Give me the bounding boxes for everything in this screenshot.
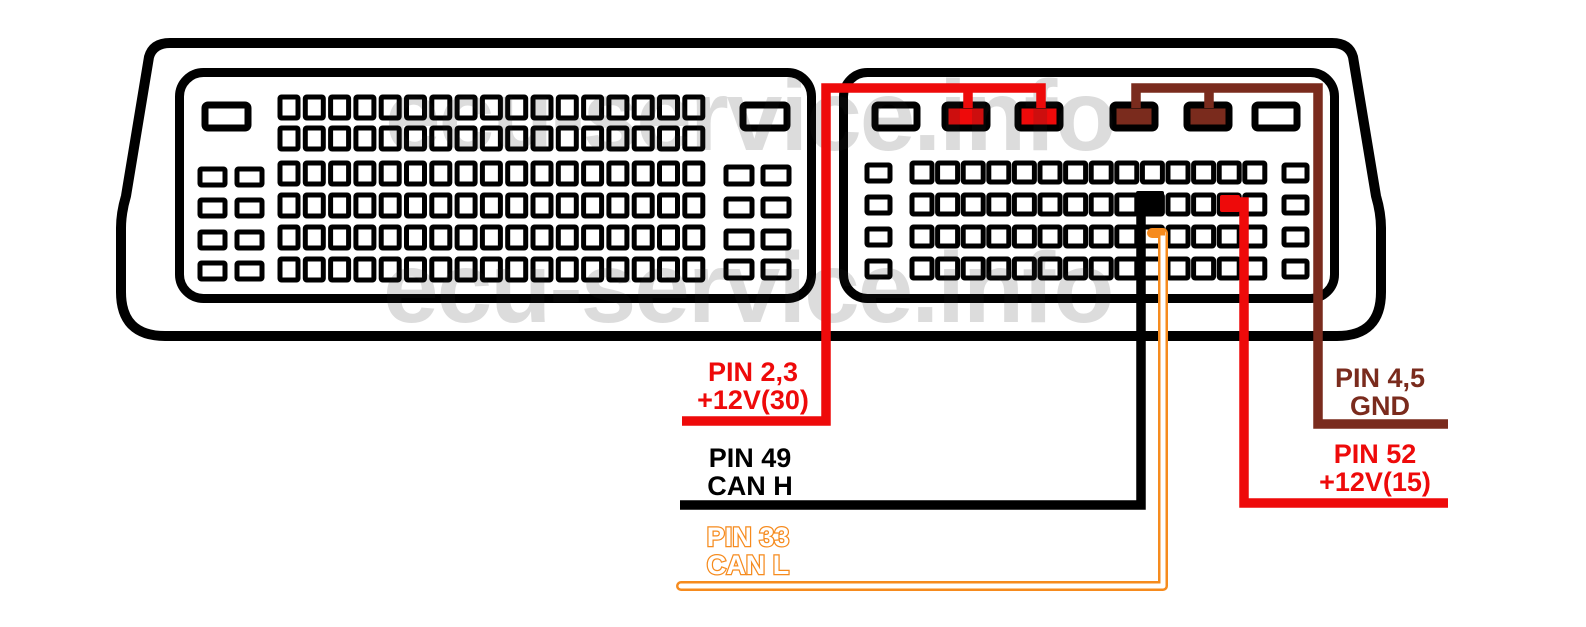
pin	[305, 227, 323, 248]
pin	[280, 97, 298, 118]
pin	[634, 195, 652, 216]
pin	[533, 195, 551, 216]
label-pin-4-5-gnd: PIN 4,5 GND	[1270, 364, 1490, 420]
pin	[609, 195, 627, 216]
pin	[200, 263, 225, 279]
pin	[1117, 163, 1137, 182]
pin	[356, 97, 374, 118]
pin	[356, 163, 374, 184]
pin	[508, 195, 526, 216]
pin	[356, 259, 374, 280]
pin	[200, 169, 225, 185]
pin	[305, 163, 323, 184]
pin	[331, 259, 349, 280]
pin	[331, 97, 349, 118]
label-pin-49-can-h: PIN 49 CAN H	[640, 444, 860, 500]
pin	[558, 195, 576, 216]
pin	[963, 195, 983, 214]
label-line: PIN 49	[640, 444, 860, 472]
pin	[200, 200, 225, 216]
pin	[1168, 259, 1188, 278]
label-line: +12V(30)	[643, 386, 863, 414]
pin	[1284, 229, 1307, 245]
label-line: +12V(15)	[1265, 468, 1485, 496]
label-pin-33-can-l: PIN 33 CAN L	[638, 523, 858, 579]
pin	[237, 263, 262, 279]
pin	[457, 195, 475, 216]
pin	[1194, 163, 1214, 182]
big-pin-brown	[1187, 105, 1229, 128]
pin	[1168, 195, 1188, 214]
pin	[912, 195, 932, 214]
pin	[1284, 197, 1307, 213]
pin	[1091, 195, 1111, 214]
pin	[1219, 163, 1239, 182]
pin	[1245, 163, 1265, 182]
pin	[305, 97, 323, 118]
label-line: PIN 4,5	[1270, 364, 1490, 392]
pin	[356, 128, 374, 149]
pin	[1117, 259, 1137, 278]
pin	[280, 259, 298, 280]
pin	[726, 199, 752, 216]
label-line: PIN 33	[638, 523, 858, 551]
pin	[1284, 165, 1307, 181]
label-line: PIN 2,3	[643, 358, 863, 386]
pin	[1194, 195, 1214, 214]
pin	[1014, 195, 1034, 214]
pin	[305, 128, 323, 149]
pin	[331, 195, 349, 216]
pin	[237, 200, 262, 216]
pin	[280, 195, 298, 216]
pin	[432, 195, 450, 216]
pin	[407, 195, 425, 216]
big-pin-brown	[1113, 105, 1155, 128]
pin	[1117, 227, 1137, 246]
pin	[280, 163, 298, 184]
pin	[280, 227, 298, 248]
pin	[1284, 261, 1307, 277]
pin	[685, 195, 703, 216]
pin	[1194, 227, 1214, 246]
pin	[660, 195, 678, 216]
pin	[331, 163, 349, 184]
big-pin	[205, 105, 248, 128]
big-pin	[1255, 105, 1297, 128]
ecu-pinout-diagram: ecu-service.info ecu-service.info PIN 2,…	[0, 0, 1586, 627]
label-line: CAN L	[638, 551, 858, 579]
label-pin-52-plus12v-15: PIN 52 +12V(15)	[1265, 440, 1485, 496]
pin	[305, 195, 323, 216]
pin	[763, 199, 789, 216]
pin	[1040, 195, 1060, 214]
pin	[867, 197, 890, 213]
pin	[1219, 259, 1239, 278]
pin	[1066, 195, 1086, 214]
pin	[1117, 195, 1137, 214]
pin	[200, 232, 225, 248]
pin	[356, 227, 374, 248]
pin	[237, 169, 262, 185]
pin	[331, 128, 349, 149]
label-line: CAN H	[640, 472, 860, 500]
watermark-text: ecu-service.info	[385, 60, 1114, 172]
label-line: GND	[1270, 392, 1490, 420]
pin	[584, 195, 602, 216]
pin	[237, 232, 262, 248]
pin	[1194, 259, 1214, 278]
pin	[305, 259, 323, 280]
pin	[1168, 227, 1188, 246]
pin	[1219, 227, 1239, 246]
pin	[1142, 163, 1162, 182]
pin	[482, 195, 500, 216]
pin	[331, 227, 349, 248]
label-pin-2-3-plus12v-30: PIN 2,3 +12V(30)	[643, 358, 863, 414]
pin	[1168, 163, 1188, 182]
pin	[381, 195, 399, 216]
pin	[989, 195, 1009, 214]
pin	[938, 195, 958, 214]
watermark-text: ecu-service.info	[383, 232, 1112, 344]
pin	[356, 195, 374, 216]
label-line: PIN 52	[1265, 440, 1485, 468]
pin	[280, 128, 298, 149]
